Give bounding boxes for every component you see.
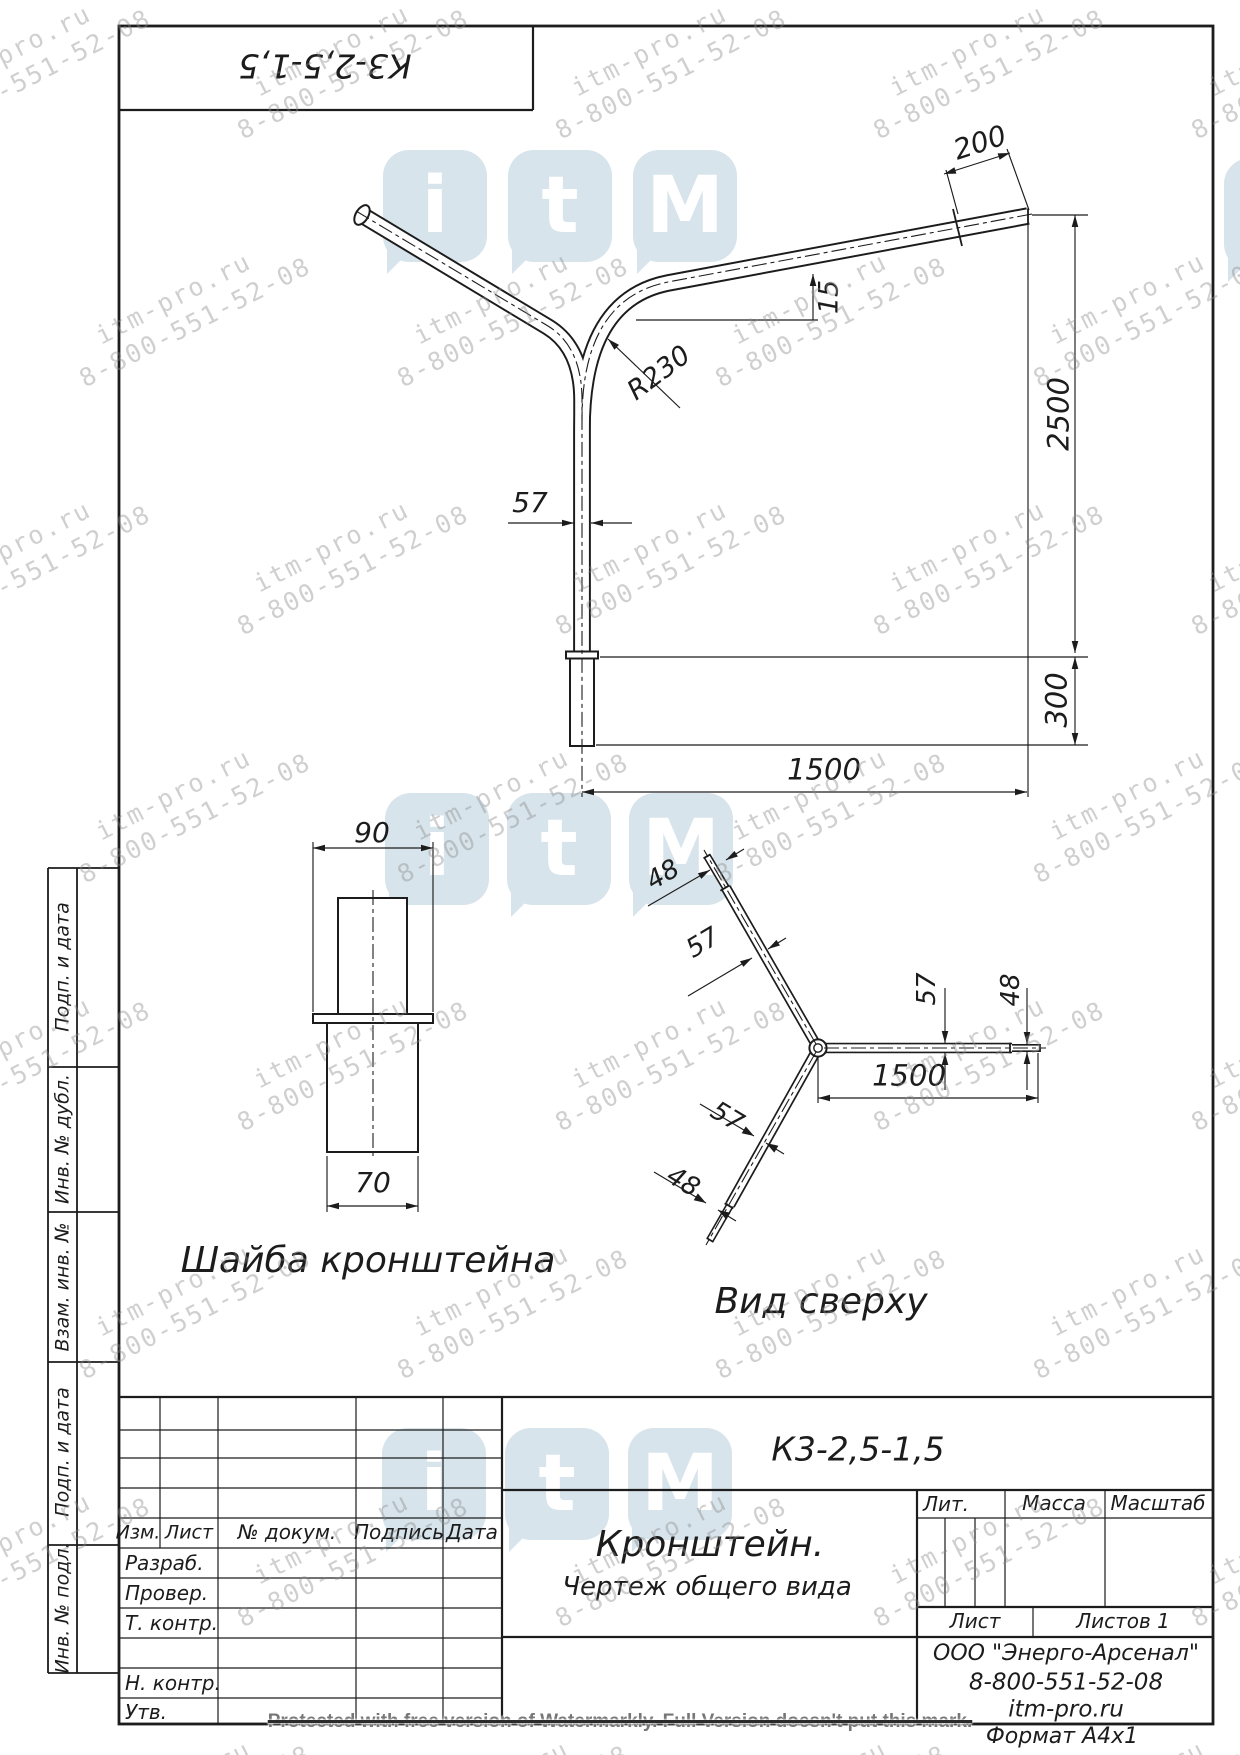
dim-label-15: 15 bbox=[816, 280, 843, 314]
dim-label-1500-top: 1500 bbox=[872, 1062, 946, 1091]
dim-label-2500: 2500 bbox=[1045, 377, 1074, 451]
doc-title: Кронштейн. bbox=[596, 1527, 824, 1563]
cell-sheets: Листов 1 bbox=[1076, 1611, 1170, 1631]
cell-sheet: Лист bbox=[950, 1611, 1001, 1631]
cell-mass: Масса bbox=[1022, 1493, 1086, 1513]
margin-label-inv-dubl: Инв. № дубл. bbox=[54, 1074, 73, 1204]
margin-label-podp-1: Подп. и дата bbox=[54, 902, 73, 1031]
header-sign: Подпись bbox=[354, 1522, 444, 1542]
dim-label-70: 70 bbox=[355, 1169, 391, 1197]
header-doc: № докум. bbox=[238, 1522, 337, 1542]
row-nkontr: Н. контр. bbox=[125, 1673, 221, 1693]
row-utv: Утв. bbox=[125, 1702, 167, 1722]
header-izm: Изм. bbox=[116, 1524, 161, 1543]
doc-subtitle: Чертеж общего вида bbox=[562, 1574, 852, 1600]
stamp-designation: К3-2,5-1,5 bbox=[771, 1433, 944, 1466]
margin-label-vzam: Взам. инв. № bbox=[54, 1222, 73, 1351]
margin-label-inv-podl: Инв. № подл. bbox=[54, 1542, 73, 1673]
row-razrab: Разраб. bbox=[125, 1553, 204, 1573]
dim-label-48-right: 48 bbox=[998, 973, 1024, 1006]
dim-label-57: 57 bbox=[512, 489, 548, 517]
cell-lit: Лит. bbox=[923, 1494, 969, 1514]
format-label: Формат А4х1 bbox=[986, 1726, 1138, 1748]
margin-label-podp-2: Подп. и дата bbox=[54, 1387, 73, 1516]
dim-label-57-right: 57 bbox=[914, 972, 940, 1005]
row-prover: Провер. bbox=[125, 1583, 208, 1603]
top-view-caption: Вид сверху bbox=[714, 1284, 927, 1320]
dim-label-90: 90 bbox=[354, 819, 390, 847]
dim-label-300: 300 bbox=[1043, 672, 1072, 727]
company-name: ООО "Энерго-Арсенал" bbox=[933, 1643, 1199, 1665]
protected-note: Protected with free version of Watermark… bbox=[268, 1711, 973, 1733]
header-date: Дата bbox=[446, 1522, 498, 1542]
company-phone: 8-800-551-52-08 bbox=[969, 1672, 1163, 1695]
corner-designation: К3-2,5-1,5 bbox=[238, 50, 411, 83]
washer-caption: Шайба кронштейна bbox=[181, 1243, 556, 1279]
drawing-sheet: i t M i t M i t M bbox=[0, 0, 1240, 1755]
header-list: Лист bbox=[165, 1524, 213, 1543]
company-site: itm-pro.ru bbox=[1008, 1699, 1124, 1722]
dim-label-1500: 1500 bbox=[787, 756, 861, 785]
row-tkontr: Т. контр. bbox=[125, 1613, 218, 1633]
cell-scale: Масштаб bbox=[1110, 1493, 1205, 1513]
